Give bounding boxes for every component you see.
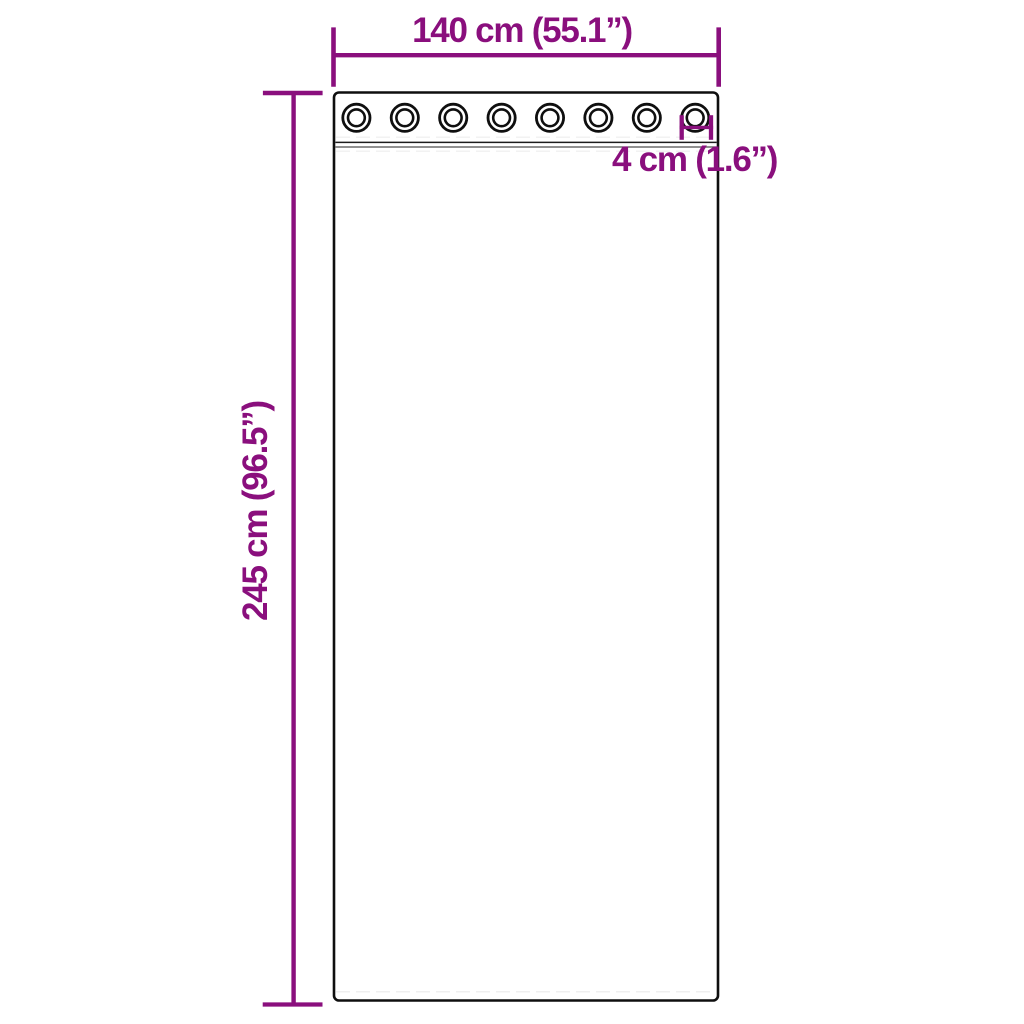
svg-text:245 cm (96.5”): 245 cm (96.5”) (236, 401, 275, 621)
svg-text:140 cm (55.1”): 140 cm (55.1”) (412, 11, 632, 50)
svg-text:4 cm (1.6”): 4 cm (1.6”) (612, 140, 777, 179)
